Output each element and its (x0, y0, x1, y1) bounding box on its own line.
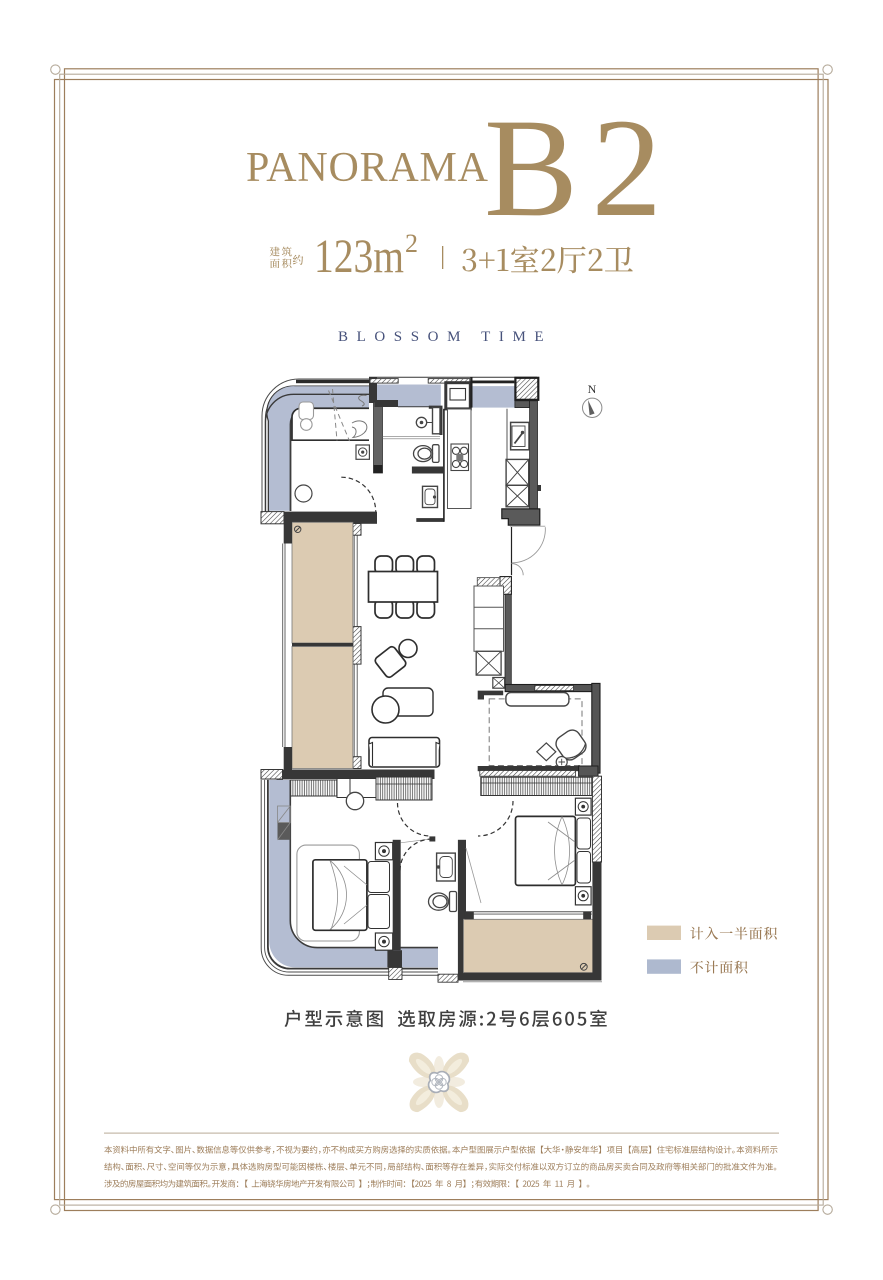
svg-text:123m: 123m (314, 230, 404, 283)
svg-text:PANORAMA: PANORAMA (246, 145, 489, 191)
svg-text:N: N (588, 382, 597, 396)
svg-text:B2: B2 (484, 90, 662, 246)
svg-text:2: 2 (405, 229, 418, 258)
svg-text:BLOSSOM TIME: BLOSSOM TIME (338, 329, 552, 345)
